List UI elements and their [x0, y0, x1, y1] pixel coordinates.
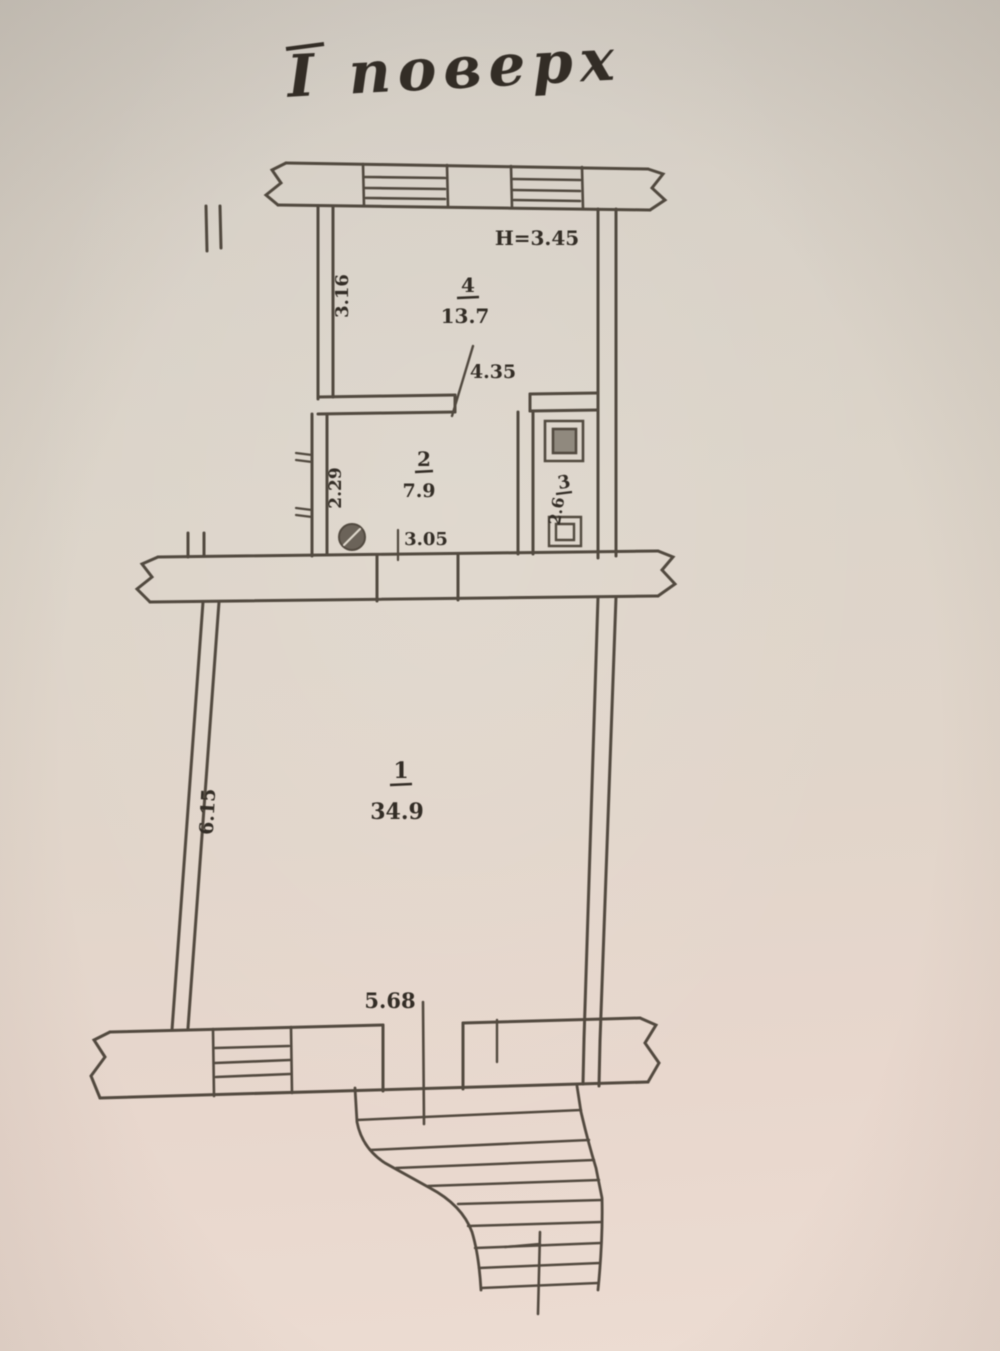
wall-line	[150, 596, 658, 602]
ceiling-height-label: H=3.45	[495, 226, 579, 250]
room-4-walls	[318, 206, 616, 558]
page-title: І поверх	[284, 25, 623, 111]
window-icon	[213, 1027, 292, 1096]
wall-line	[583, 1039, 600, 1086]
wall-break-right	[658, 551, 675, 596]
room-2-width-dimension: 3.05	[404, 529, 448, 550]
wall-break-right	[640, 1018, 659, 1082]
scanned-floor-plan-photo: І поверх	[0, 0, 1000, 1351]
room-1-number: 1	[393, 758, 408, 784]
stair-inner-edge	[577, 1086, 602, 1290]
sink-icon	[545, 421, 583, 461]
wall-line	[100, 1082, 648, 1098]
adjacent-wall-stub	[206, 206, 207, 251]
room-4-area: 13.7	[441, 304, 490, 328]
wall-break-right	[648, 169, 665, 210]
room-4-number: 4	[461, 273, 475, 297]
room-2-number: 2	[417, 447, 431, 471]
room-4-width-dimension: 4.35	[470, 361, 516, 383]
room-3-number: 3	[556, 471, 572, 494]
window-icon	[363, 164, 448, 207]
plan-labels: H=3.45 4 13.7 3.16 4.35 2 7.9 2.29 3.05 …	[196, 226, 579, 1013]
room-2-depth-dimension: 2.29	[326, 467, 346, 508]
room-1-width-dimension: 5.68	[364, 988, 415, 1013]
floor-title-text: І поверх	[284, 25, 623, 111]
wall-line	[600, 597, 616, 1041]
floor-plan-svg: І поверх	[0, 0, 1000, 1351]
partition-wall	[318, 410, 598, 414]
room-1-area: 34.9	[370, 799, 424, 825]
staircase	[355, 1086, 602, 1314]
room-number-underline	[415, 471, 433, 472]
wall-line	[286, 163, 648, 169]
adjacent-wall-stub	[188, 533, 204, 557]
room-number-underline	[390, 784, 412, 785]
window-icon	[511, 166, 583, 209]
bottom-exterior-wall	[91, 1002, 659, 1124]
entrance-axis-line	[423, 1002, 424, 1124]
room-3-area: 2.6	[545, 496, 569, 527]
doorway-jambs	[377, 555, 458, 601]
top-exterior-wall	[206, 163, 665, 251]
room-3-walls	[518, 412, 583, 554]
wall-line	[158, 551, 658, 557]
wall-break-left	[137, 557, 158, 602]
wall-line	[584, 597, 598, 1039]
wall-break-left	[91, 1032, 110, 1098]
plan-linework	[91, 163, 675, 1314]
room-number-underline	[457, 297, 479, 298]
room-2-area: 7.9	[402, 480, 435, 502]
room-1-depth-dimension: 6.15	[196, 788, 220, 835]
wall-break-left	[266, 163, 286, 205]
room-4-depth-dimension: 3.16	[332, 274, 353, 318]
door-jamb	[455, 394, 530, 412]
adjacent-wall-stub	[220, 206, 221, 248]
vent-tick-marks	[296, 453, 312, 517]
stove-icon	[339, 524, 365, 550]
